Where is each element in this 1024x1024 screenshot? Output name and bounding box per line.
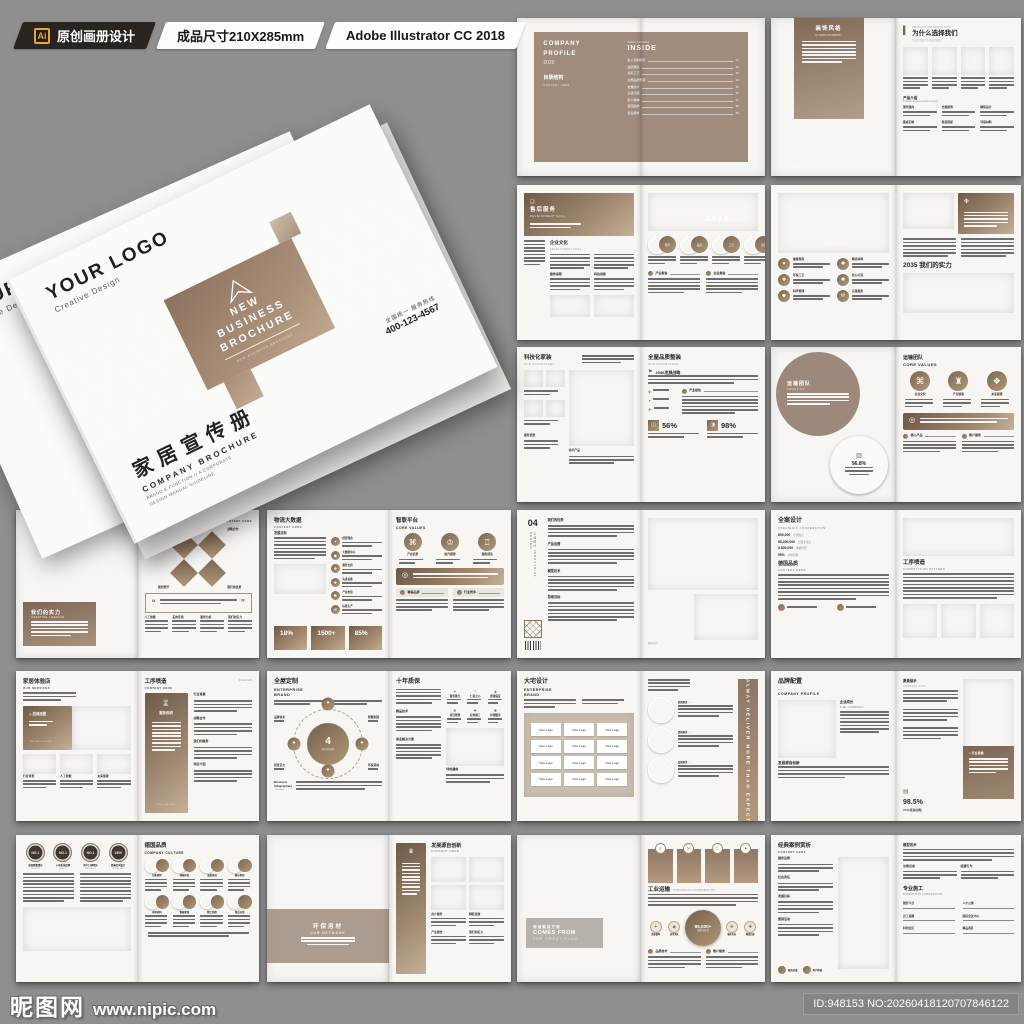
column: 德国品质CONTENT HERE [778, 561, 889, 572]
badge-software: Adobe Illustrator CC 2018 [325, 22, 526, 49]
row: 04工业设计 INDUSTRIAL DESIGN我们的优势产品运营模型技术思维目… [524, 518, 634, 650]
text-line [342, 555, 382, 557]
image-id-badge: ID:948153 NO:20260418120707846122 [804, 994, 1018, 1014]
row: ♛发展源自创新CONTENT HERE用户服务精装发展产业报告我们的实力 [396, 843, 504, 974]
column: 1500经典空间设计DESIGN CASE [106, 843, 131, 870]
text-line [23, 887, 74, 889]
row: ✦服务能力♡仁者之心◈质量保证 [446, 689, 504, 706]
text-line [903, 444, 956, 446]
label: 美的环境 [172, 616, 196, 619]
row: ◫56%◨98% [648, 420, 758, 440]
column: 匠心打造 [852, 274, 889, 286]
photo-white [550, 295, 590, 317]
text-lines [296, 781, 382, 791]
brochure-3d-mockup: YOUR LOGO Creative Design YOUR LOGO Crea… [0, 52, 516, 504]
label: 发展目标 [778, 895, 833, 899]
text-line [712, 259, 740, 261]
text-line [152, 732, 181, 734]
logo-placeholder: Your Logo [564, 723, 594, 736]
icon-circle: ❖ [331, 564, 340, 573]
row: ❖环保工艺 [778, 274, 830, 286]
text-line [840, 725, 889, 727]
text-line [980, 111, 1014, 113]
label: THE COMPANY [152, 804, 181, 807]
photo-overlay: TOP REAL · VISION [778, 166, 831, 170]
label: ✚ [474, 708, 477, 713]
percent-stat: ◨98% [707, 420, 758, 431]
row: 环保材料智能家居精工制造售后无忧 [145, 895, 253, 929]
column: 服务保障 [550, 273, 590, 292]
text-line [548, 555, 634, 557]
text-line [678, 745, 719, 747]
text-line [145, 879, 167, 881]
text-line [903, 584, 1014, 586]
double-circle [172, 859, 196, 873]
text-lines [368, 720, 382, 723]
column: 阅读更多 → [678, 731, 733, 749]
text-lines [548, 602, 634, 622]
bullet-label: 产业报告 [656, 272, 668, 276]
text-line [903, 859, 992, 861]
text-line [548, 559, 634, 561]
text-line [744, 263, 761, 265]
text-line [431, 939, 466, 941]
text-line [453, 606, 505, 608]
text-line [903, 716, 958, 718]
text-lines [569, 456, 634, 466]
toc-label: 匠人精神 [627, 98, 639, 102]
row: 企业文化DEVELOPMENT GOAL服务保障科技创新 [524, 240, 634, 332]
text-line [467, 699, 481, 701]
column: ◈质量保证 [487, 689, 504, 706]
text-line [530, 223, 581, 225]
label: 先进设备 [342, 578, 382, 581]
text-line [802, 48, 856, 50]
logo-placeholder: Your Logo [531, 756, 561, 769]
label: 家居体验店 [23, 679, 131, 686]
column: 工序喷造COMPETITION PATTERN [903, 560, 1014, 571]
column: ⌘产业优势 [396, 533, 429, 565]
text-line [274, 537, 326, 539]
logo-grid: Your LogoYour LogoYour LogoYour LogoYour… [531, 723, 627, 786]
text-line [469, 921, 504, 923]
accent-banner: ◎ [903, 413, 1014, 430]
column: 先进设备 [342, 578, 382, 589]
text-line [342, 596, 382, 598]
text-lines [787, 393, 849, 407]
stat-value: 800,000 [778, 533, 790, 537]
text-line [961, 81, 986, 83]
photo-overlay: ⌂ 行业背景 [963, 746, 1014, 799]
text-line [778, 584, 889, 586]
bullet-rule [670, 951, 700, 953]
text-line [80, 900, 123, 902]
label: 服务运维 [788, 969, 798, 972]
text-line [678, 742, 733, 744]
row: ◈✦❖产业报告 [648, 389, 758, 416]
photo-kitchen: COMPANYPROFILE2030目录结构CONTENT HEREWhat i… [517, 18, 765, 176]
label: ✦ [453, 689, 456, 694]
text-line [648, 682, 690, 684]
toc-leader [642, 92, 732, 95]
text-lines [793, 295, 830, 302]
scale-item: ❖服务完善 [724, 921, 740, 937]
page-left: 全案设计STRATEGIC COOPERATION800,000全国热点86,2… [771, 510, 896, 658]
text-lines [654, 407, 676, 410]
text-line [331, 703, 367, 705]
text-lines [446, 774, 504, 784]
text-line [778, 924, 833, 926]
column: 德国品质COMPANY CULTURE [145, 843, 253, 855]
label: FUTURE EXPECTATION [705, 222, 743, 225]
text-lines [778, 901, 833, 915]
text-lines [342, 582, 382, 589]
text-line [524, 703, 576, 705]
text-line [228, 624, 252, 626]
label: 为什么选择我们 [912, 30, 1014, 38]
text-line [903, 856, 1014, 858]
text-line [23, 780, 56, 782]
text-lines [903, 709, 958, 723]
page-right: ♕✉♖✦工业运输STRATEGIC COOPERATION✦资金雄厚◆技术领先8… [641, 835, 765, 982]
row [778, 604, 831, 611]
text-line [793, 298, 823, 300]
text-line [396, 692, 441, 694]
text-lines [200, 879, 223, 893]
page-left: 海运集成方案COMES FROMTHE GREAT PLAN [517, 835, 641, 982]
photo-dining2: ⌂ 行业背景 [963, 679, 1014, 799]
text-line [396, 599, 448, 601]
text-line [148, 935, 229, 937]
label: ❖ [648, 407, 652, 412]
label: STRATEGIC COOPERATION [673, 889, 716, 892]
photo-gray [469, 857, 504, 882]
text-line [648, 956, 701, 958]
text-line [194, 734, 238, 736]
scale-item: ◆技术领先 [667, 921, 683, 937]
label: 服务分析 [200, 616, 224, 619]
row: ✚精选材料 [837, 258, 889, 270]
text-line [524, 444, 558, 446]
photo-darkbed [431, 885, 466, 910]
text-line [80, 873, 131, 875]
text-lines [467, 699, 482, 706]
column [274, 537, 326, 623]
row: ❖项目管理✚标准施工✺护理服务 [446, 708, 504, 725]
text-line [431, 925, 455, 927]
column: ⌘企业文化 [903, 371, 937, 409]
toc-item: 匠人精神07 [627, 98, 738, 102]
row [648, 594, 758, 640]
text-line [402, 883, 420, 885]
scale-icon: ✚ [744, 921, 756, 933]
text-lines [524, 390, 561, 397]
text-line [903, 87, 920, 89]
text-line [194, 780, 238, 782]
label: 品牌配置 [778, 679, 889, 687]
text-lines [961, 871, 1015, 881]
text-lines [550, 278, 590, 292]
column: 精装设计 [980, 106, 1014, 118]
text-line [296, 788, 365, 790]
row: ✦ [648, 398, 676, 403]
column: 经典案例赏析CONTENT HERE [778, 843, 889, 854]
text-lines [778, 574, 889, 601]
text-line [145, 926, 161, 928]
text-line [678, 772, 733, 774]
text-line [961, 255, 1006, 257]
text-line [152, 746, 181, 748]
stat-value: 86,200,000 [778, 540, 795, 544]
row: 精品技术商业解决方案✦服务能力♡仁者之心◈质量保证❖项目管理✚标准施工✺护理服务… [396, 689, 504, 814]
text-line [194, 747, 253, 749]
photo-overlay: COMPANYPROFILE2030目录结构CONTENT HEREWhat i… [534, 32, 747, 162]
text-lines [469, 936, 504, 946]
text-line [228, 879, 250, 881]
label: 阅读更多 → [678, 761, 733, 764]
text-line [524, 420, 558, 422]
label: 访客记录 [903, 865, 957, 869]
text-lines [23, 873, 74, 904]
text-line [145, 624, 169, 626]
text-line [152, 722, 181, 724]
text-line [905, 406, 924, 408]
text-lines [594, 278, 634, 292]
double-circle: 定制 [744, 236, 765, 254]
text-lines [274, 768, 288, 771]
page-right: ▍PRODUCT INTRODUCTION为什么选择我们产品介绍及个性化设计服务… [896, 18, 1021, 176]
text-line [228, 627, 252, 629]
row: 品质技术客户服务 [648, 949, 758, 970]
text-line [548, 613, 634, 615]
text-line [342, 572, 372, 574]
label: 战略合作 [194, 717, 253, 721]
label: 98.5% [903, 799, 958, 808]
text-line [648, 963, 701, 965]
text-line [852, 295, 889, 297]
scale-label: 物流高效 [746, 934, 755, 937]
text-line [172, 631, 189, 633]
text-line [447, 699, 461, 701]
text-line [194, 700, 253, 702]
toc-item: 发展简介05 [627, 85, 738, 89]
text-lines [942, 111, 976, 118]
text-line [903, 694, 958, 696]
bullet-rule [984, 435, 1014, 437]
text-line [396, 744, 441, 746]
text-line [274, 544, 326, 546]
text-line [582, 358, 635, 360]
text-line [962, 444, 1015, 446]
label: 用户服务 [431, 913, 466, 916]
text-line [778, 864, 833, 866]
text-line [488, 718, 502, 720]
text-lines [29, 721, 59, 728]
text-line [903, 719, 947, 721]
scale-label: 资金雄厚 [651, 934, 660, 937]
logo-placeholder: Your Logo [597, 740, 627, 753]
toc-number: 07 [736, 99, 739, 102]
text-line [778, 770, 889, 772]
label: OUR NETWORK [273, 931, 383, 935]
stat-label: 电商代理 [796, 547, 806, 550]
label: 环保用材 [273, 924, 383, 931]
text-line [648, 960, 701, 962]
label: 产业报告 [431, 931, 466, 934]
text-line [524, 247, 545, 249]
row [550, 254, 634, 271]
icon-circle: ♖ [478, 533, 496, 551]
text-lines [980, 111, 1014, 118]
brand-circle [183, 895, 196, 908]
label: 现代简约 [903, 106, 937, 109]
spread-experience-store: 家居体验店OUR SERVICES◬ 招商加盟THE BEST HOME行业背景… [16, 671, 259, 821]
text-line [787, 606, 817, 608]
text-line [569, 462, 615, 464]
text-line [903, 874, 957, 876]
text-line [787, 393, 849, 395]
text-line [648, 285, 700, 287]
text-line [582, 355, 635, 357]
text-line [436, 559, 460, 561]
label: 产业优势 [407, 553, 418, 556]
text-line [903, 451, 940, 453]
text-lines [436, 559, 464, 566]
column: 集成定制 [903, 121, 937, 133]
stat-value: 1500+ [317, 630, 335, 637]
bullet-dot [400, 590, 405, 595]
text-line [778, 883, 833, 885]
toc-item: 私人定制服务01 [627, 58, 738, 62]
column [903, 47, 928, 91]
tab-bar [705, 849, 730, 883]
logo-placeholder: Your Logo [531, 723, 561, 736]
row: 用户服务精装发展 [431, 913, 504, 928]
text-lines [706, 956, 759, 970]
text-lines [653, 398, 675, 401]
text-lines [989, 77, 1014, 91]
text-line [648, 433, 699, 435]
column: 阅读更多 → [678, 761, 733, 779]
text-line [469, 936, 504, 938]
row [524, 370, 565, 387]
text-line [548, 609, 634, 611]
row: 工序喷造CONTENT HEREPAGE 01/02 [145, 679, 253, 690]
text-line [653, 398, 668, 400]
row: 阅读更多 →阅读更多 →阅读更多 →ALWAY DELIVER MORE THA… [648, 679, 758, 821]
text-line [962, 451, 999, 453]
label: CONTENT HERE [431, 850, 504, 853]
tab-item: ♖ [705, 843, 730, 883]
text-line [23, 897, 74, 899]
text-line [194, 730, 253, 732]
spacer [402, 858, 420, 861]
icon-circle: ♜ [948, 371, 968, 391]
page-right: 全屋品质整装OUR ADVANTAGES⚑2036发展战略◈✦❖产业报告◫56%… [641, 347, 765, 502]
column: 大数据中心 [342, 551, 382, 562]
text-line [396, 754, 441, 756]
row: 核心产品客户服务 [903, 434, 1014, 455]
text-line [840, 728, 889, 730]
label: ✺ [494, 708, 497, 713]
text-line [228, 882, 250, 884]
text-line [413, 573, 498, 575]
text-line [932, 81, 957, 83]
row: 科技化家装OUR ADVANTAGES [524, 355, 634, 366]
spread-cooperation: 商业合作✦健康理念❖环保工艺◆科学管理✚精选材料✺匠心打造✉完善服务❉2035 … [771, 185, 1021, 340]
text-line [903, 255, 948, 257]
icon-circle [803, 966, 811, 974]
spread-german-quality: NO.1全国销量领先CHINA TOPNO.1十年质保品牌QUALITYNO.1… [16, 835, 259, 982]
text-line [778, 773, 889, 775]
text-line [396, 757, 432, 759]
column: 全屋配饰 [942, 106, 976, 118]
toc-number: 09 [736, 112, 739, 115]
text-line [274, 768, 284, 770]
brand-circle [238, 895, 251, 908]
text-line [160, 599, 237, 601]
page-right: 德国品质COMPANY CULTURE万象更新瑞丽风尚品质保证细节把控环保材料智… [138, 835, 260, 982]
row: 服务保障科技创新 [550, 273, 634, 292]
text-lines [145, 620, 169, 634]
text-line [548, 525, 634, 527]
text-lines [903, 690, 958, 704]
photo-kitchen2 [694, 594, 758, 640]
text-line [173, 886, 195, 888]
page-right: 运输团队CORE VALUES⌘企业文化♜产业智联❖未来展望◎核心产品客户服务 [896, 347, 1021, 502]
column: 客户服务 [706, 949, 759, 970]
text-line [402, 890, 420, 892]
text-line [23, 900, 64, 902]
column: 标准生产 [342, 605, 382, 616]
text-line [648, 259, 676, 261]
text-line [845, 467, 873, 469]
text-line [173, 915, 195, 917]
bullet-rule [704, 390, 758, 392]
brand-circle [156, 859, 169, 872]
text-line [524, 699, 576, 701]
text-line [194, 777, 253, 779]
text-line [23, 699, 61, 701]
text-line [961, 252, 1014, 254]
text-line [342, 586, 372, 588]
bullet-dot [903, 434, 908, 439]
column: 精品技术商业解决方案 [396, 689, 441, 814]
column: 万象更新 [145, 859, 170, 893]
table-cell: 国际会议中心 [963, 912, 1015, 922]
page-right: 工序喷造CONTENT HEREPAGE 01/02⏳服务说明THE COMPA… [138, 671, 260, 821]
text-line [778, 931, 833, 933]
text-line [530, 227, 571, 229]
text-line [548, 579, 634, 581]
text-lines [524, 699, 576, 709]
label: 大数据中心 [342, 551, 382, 554]
text-lines [173, 915, 196, 929]
label: 服务团队 [482, 553, 493, 556]
bullet-label: 行业竞争 [464, 591, 476, 595]
scale-icon: ❖ [726, 921, 738, 933]
text-lines [194, 747, 253, 761]
label: 项目管理 [450, 714, 460, 717]
text-line [453, 599, 505, 601]
label: 十年质保 [396, 679, 504, 687]
text-line [648, 379, 758, 381]
text-line [648, 263, 665, 265]
text-line [488, 702, 499, 704]
double-circle: 工艺 [712, 236, 740, 254]
text-line [342, 545, 372, 547]
text-line [778, 777, 845, 779]
